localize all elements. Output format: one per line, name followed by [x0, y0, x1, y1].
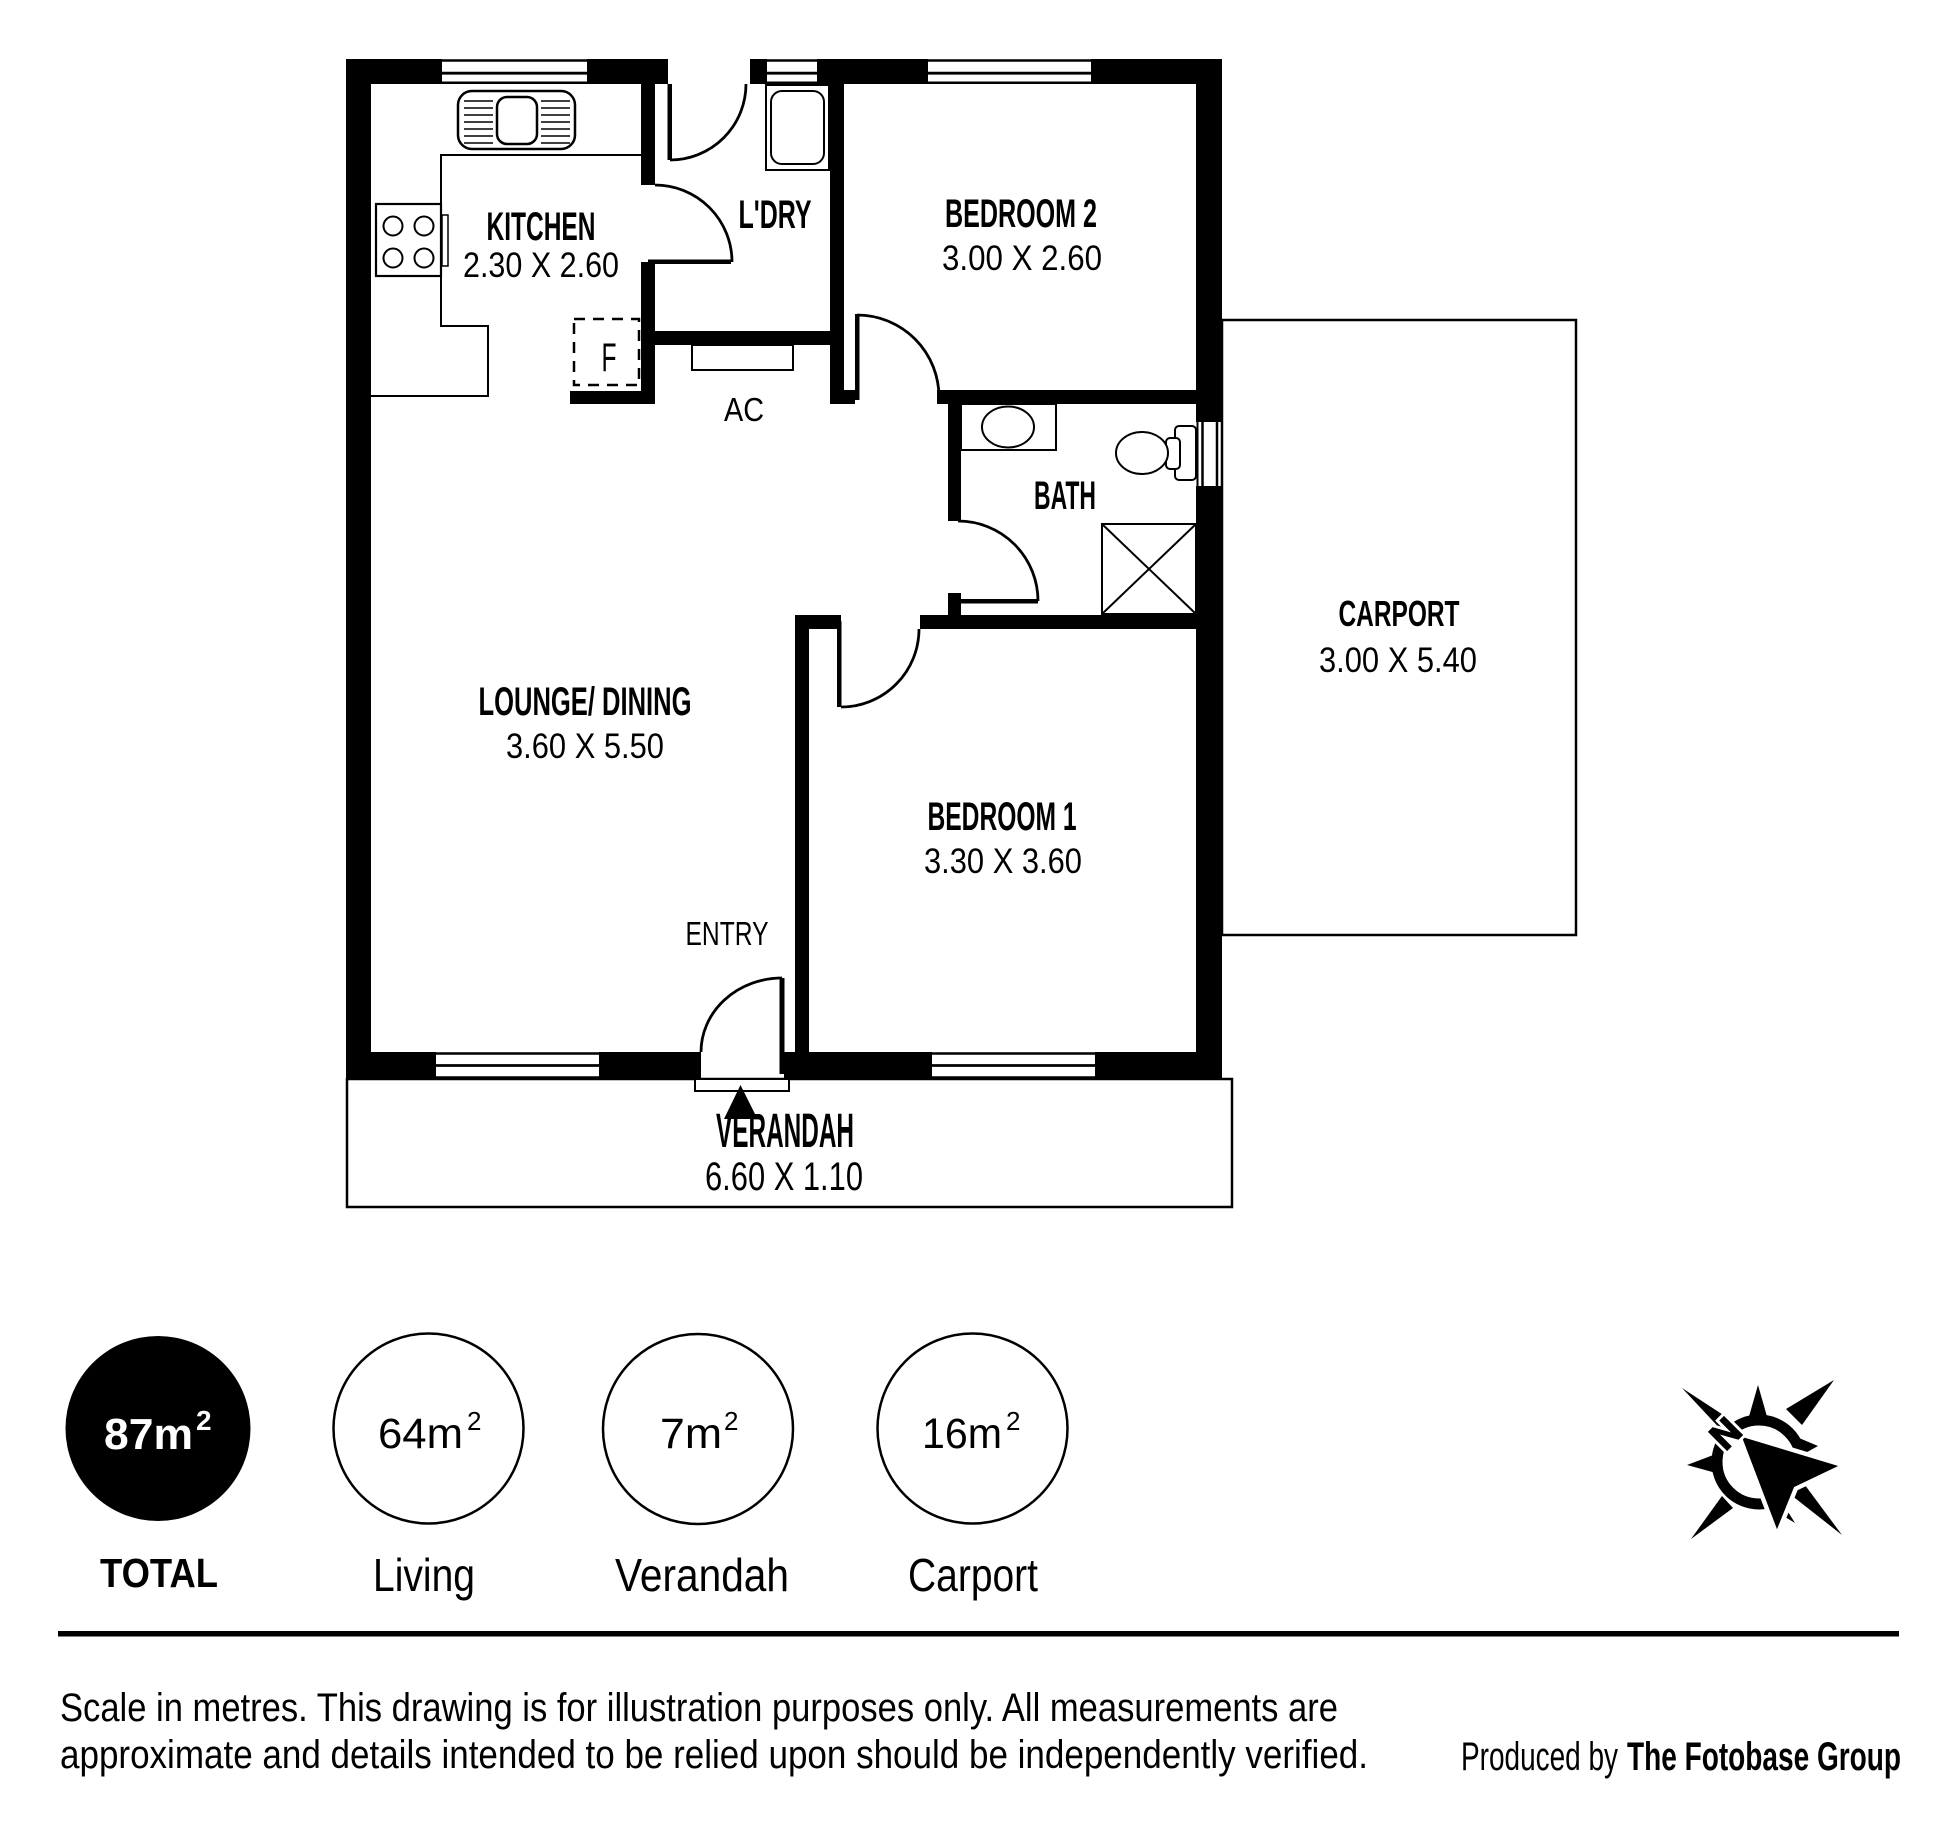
svg-text:3.00 X 5.40: 3.00 X 5.40	[1319, 641, 1477, 680]
svg-text:64m: 64m	[378, 1410, 463, 1458]
svg-text:Living: Living	[373, 1549, 475, 1601]
svg-text:The Fotobase Group: The Fotobase Group	[1627, 1735, 1901, 1779]
svg-text:L'DRY: L'DRY	[739, 193, 812, 237]
svg-text:2: 2	[196, 1405, 212, 1436]
svg-text:BATH: BATH	[1034, 474, 1096, 518]
svg-text:2: 2	[1006, 1406, 1020, 1436]
svg-text:6.60 X 1.10: 6.60 X 1.10	[705, 1155, 863, 1199]
svg-text:3.30 X 3.60: 3.30 X 3.60	[924, 842, 1082, 881]
svg-text:F: F	[602, 336, 617, 380]
svg-text:2: 2	[467, 1406, 481, 1436]
svg-text:Verandah: Verandah	[615, 1549, 789, 1601]
svg-text:Scale in metres. This drawing: Scale in metres. This drawing is for ill…	[60, 1686, 1338, 1730]
svg-text:Produced by: Produced by	[1461, 1735, 1618, 1779]
svg-text:VERANDAH: VERANDAH	[716, 1105, 854, 1158]
svg-text:LOUNGE/ DINING: LOUNGE/ DINING	[479, 680, 692, 724]
svg-text:CARPORT: CARPORT	[1339, 593, 1460, 634]
svg-text:2.30 X 2.60: 2.30 X 2.60	[463, 246, 619, 285]
svg-text:approximate and details intend: approximate and details intended to be r…	[60, 1733, 1368, 1777]
svg-text:AC: AC	[724, 391, 764, 428]
svg-text:Carport: Carport	[908, 1549, 1038, 1601]
svg-text:BEDROOM 2: BEDROOM 2	[945, 192, 1097, 236]
svg-text:TOTAL: TOTAL	[100, 1550, 218, 1596]
svg-text:KITCHEN: KITCHEN	[487, 205, 596, 249]
svg-text:3.60 X 5.50: 3.60 X 5.50	[506, 727, 664, 766]
svg-text:87m: 87m	[104, 1410, 193, 1459]
svg-text:2: 2	[724, 1406, 738, 1436]
svg-text:7m: 7m	[660, 1410, 722, 1458]
svg-text:BEDROOM 1: BEDROOM 1	[928, 795, 1077, 839]
svg-text:3.00 X 2.60: 3.00 X 2.60	[942, 239, 1102, 278]
svg-text:16m: 16m	[922, 1410, 1002, 1458]
svg-text:ENTRY: ENTRY	[686, 915, 769, 952]
